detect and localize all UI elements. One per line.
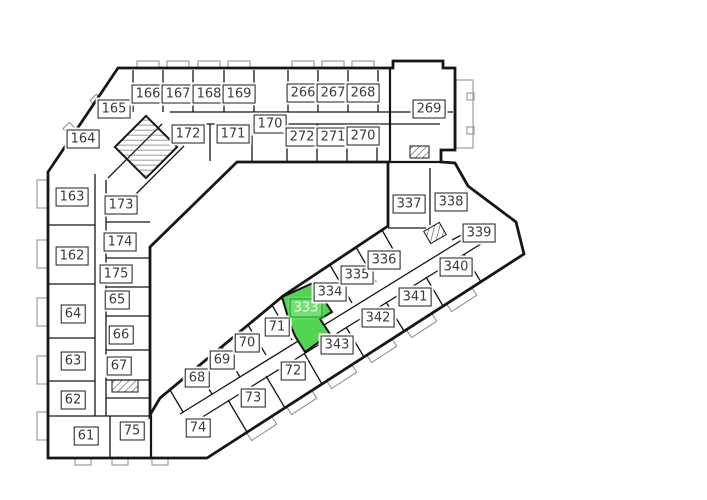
room-label-169[interactable]: 169 [223,85,256,104]
room-label-62[interactable]: 62 [61,391,86,410]
room-label-268[interactable]: 268 [347,84,380,103]
room-label-166[interactable]: 166 [132,85,165,104]
room-label-70[interactable]: 70 [235,334,260,353]
room-label-269[interactable]: 269 [413,100,446,119]
room-label-338[interactable]: 338 [435,193,468,212]
room-label-172[interactable]: 172 [172,125,205,144]
room-label-74[interactable]: 74 [186,419,211,438]
room-label-341[interactable]: 341 [399,288,432,307]
room-label-64[interactable]: 64 [61,305,86,324]
room-label-343[interactable]: 343 [321,336,354,355]
room-label-337[interactable]: 337 [393,195,426,214]
floorplan-page: 1641651661671681691721711702662672682722… [0,0,707,500]
room-label-267[interactable]: 267 [317,84,350,103]
room-label-63[interactable]: 63 [61,352,86,371]
room-label-164[interactable]: 164 [67,130,100,149]
room-label-68[interactable]: 68 [185,369,210,388]
room-label-271[interactable]: 271 [317,128,350,147]
room-label-75[interactable]: 75 [120,422,145,441]
room-label-65[interactable]: 65 [105,291,130,310]
room-label-72[interactable]: 72 [281,362,306,381]
room-label-162[interactable]: 162 [56,247,89,266]
room-label-266[interactable]: 266 [287,84,320,103]
room-label-69[interactable]: 69 [210,351,235,370]
room-label-61[interactable]: 61 [74,427,99,446]
room-label-175[interactable]: 175 [100,265,133,284]
room-label-66[interactable]: 66 [109,326,134,345]
room-label-73[interactable]: 73 [241,389,266,408]
room-label-173[interactable]: 173 [105,196,138,215]
room-label-71[interactable]: 71 [265,318,290,337]
room-label-163[interactable]: 163 [56,188,89,207]
room-label-167[interactable]: 167 [162,85,195,104]
room-label-170[interactable]: 170 [254,115,287,134]
room-label-334[interactable]: 334 [314,283,347,302]
room-label-174[interactable]: 174 [104,233,137,252]
room-label-342[interactable]: 342 [362,309,395,328]
room-label-171[interactable]: 171 [217,125,250,144]
room-label-67[interactable]: 67 [107,357,132,376]
room-label-339[interactable]: 339 [463,224,496,243]
room-labels-layer: 1641651661671681691721711702662672682722… [0,0,707,500]
room-label-270[interactable]: 270 [347,127,380,146]
room-label-340[interactable]: 340 [440,258,473,277]
room-label-165[interactable]: 165 [98,100,131,119]
room-label-272[interactable]: 272 [286,128,319,147]
room-label-168[interactable]: 168 [193,85,226,104]
room-label-336[interactable]: 336 [368,251,401,270]
